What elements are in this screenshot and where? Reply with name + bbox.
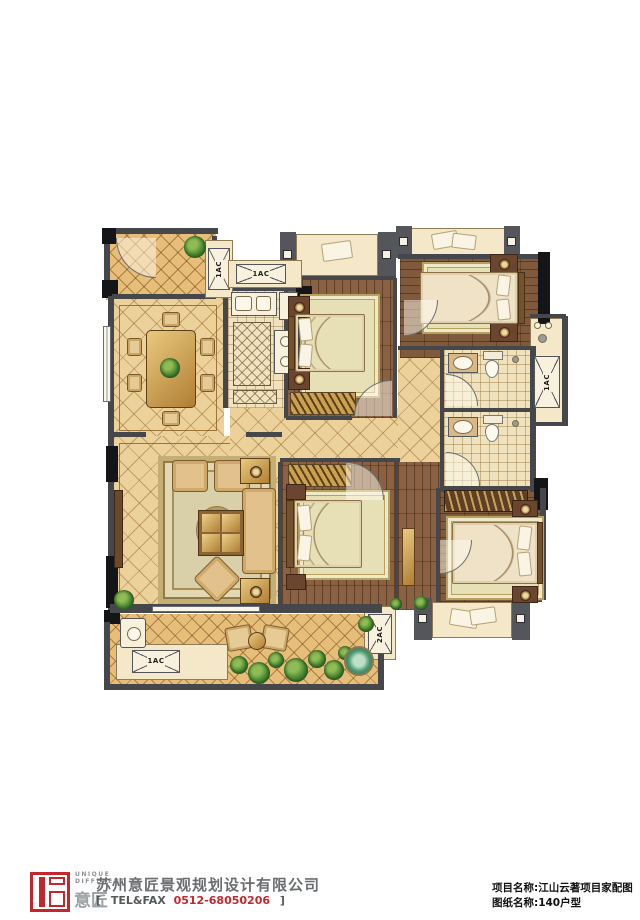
tel-label: TEL&FAX <box>111 894 166 907</box>
wall <box>104 244 110 284</box>
dining-centerpiece <box>160 358 180 378</box>
utility-fixture <box>545 322 552 329</box>
wall <box>280 458 400 462</box>
toilet-tank <box>483 351 503 360</box>
lamp <box>520 504 531 515</box>
tel-bracket-open: [ <box>96 894 101 907</box>
wall <box>278 462 282 610</box>
toilet-bowl <box>485 424 499 442</box>
bathroom-sink <box>453 356 473 370</box>
potted-plant <box>184 236 206 258</box>
terrace-table <box>248 632 266 650</box>
wall <box>104 684 382 690</box>
coffee-table-pane <box>222 534 240 552</box>
logo-bar <box>39 877 45 907</box>
terrace-plant <box>230 656 248 674</box>
utility-drain <box>538 334 547 343</box>
washer-door <box>127 627 141 641</box>
dining-chair <box>162 411 180 426</box>
window <box>103 326 111 402</box>
pier-inset <box>507 237 516 246</box>
bed-headboard <box>286 500 294 568</box>
terrace-plant <box>248 662 270 684</box>
dining-chair <box>127 374 142 392</box>
ac-label: 2AC <box>376 625 385 644</box>
coffee-table-pane <box>202 534 220 552</box>
ac-label: 1AC <box>252 270 271 279</box>
wardrobe <box>290 392 356 415</box>
ac-label: 1AC <box>147 657 166 666</box>
utility-fixture <box>534 322 541 329</box>
nightstand <box>490 322 518 342</box>
lamp <box>499 327 510 338</box>
wall <box>562 316 568 426</box>
floorplan-page: 1AC 1AC 1AC 1AC 2AC <box>0 0 640 920</box>
kitchen-sink-basin <box>256 296 271 311</box>
sheet-name-line: 图纸名称:140户型 <box>492 896 633 911</box>
bed-headboard <box>518 272 525 324</box>
terrace-plant <box>308 650 326 668</box>
ac-unit-utility: 1AC <box>534 356 560 408</box>
toilet <box>483 415 503 445</box>
wall-pier <box>512 598 530 640</box>
pier-inset <box>283 250 292 259</box>
bay-pillow <box>451 233 477 251</box>
wall <box>112 294 216 299</box>
project-name-line: 项目名称:江山云著项目家配图 <box>492 881 633 896</box>
wall <box>223 296 228 408</box>
dining-chair <box>200 374 215 392</box>
logo-block <box>49 891 65 907</box>
tel-number: 0512-68050206 <box>174 894 270 907</box>
nightstand <box>490 254 518 274</box>
wall <box>398 254 544 259</box>
ac-unit-terrace: 1AC <box>132 650 180 673</box>
nightstand <box>286 484 306 500</box>
bed-pillow <box>297 504 313 531</box>
wall-stub <box>112 432 146 437</box>
dining-chair <box>200 338 215 356</box>
water-feature <box>344 646 374 676</box>
terrace-plant <box>284 658 308 682</box>
bed-pillow <box>298 317 313 341</box>
wall <box>398 346 532 350</box>
wall-pier <box>378 232 396 278</box>
armchair <box>172 460 208 492</box>
company-logo <box>30 872 70 912</box>
titleblock: 项目名称:江山云著项目家配图 图纸名称:140户型 <box>492 881 633 911</box>
dining-chair <box>162 312 180 327</box>
bed-pillow <box>297 534 313 561</box>
bed-pillow <box>298 343 313 367</box>
sofa <box>242 488 276 574</box>
nightstand <box>512 586 538 603</box>
wall <box>104 228 218 234</box>
lamp <box>499 259 510 270</box>
ac-label: 1AC <box>215 260 224 279</box>
wall-pillar <box>106 446 118 482</box>
potted-plant <box>114 590 134 610</box>
pier-inset <box>516 614 525 623</box>
toilet <box>483 351 503 381</box>
wall <box>395 462 398 610</box>
pier-inset <box>418 614 427 623</box>
terrace-plant <box>268 652 284 668</box>
lamp <box>294 302 305 313</box>
wall <box>530 314 566 318</box>
bed-headboard <box>537 522 543 584</box>
dining-chair <box>127 338 142 356</box>
wall <box>104 622 110 688</box>
coffee-table <box>198 510 244 556</box>
console-table <box>402 528 415 586</box>
tel-bracket-close: ] <box>280 894 285 907</box>
kitchen-cabinet <box>233 390 277 404</box>
shower-head <box>512 420 519 427</box>
pier-inset <box>399 237 408 246</box>
ac-unit-kitchen: 1AC <box>236 264 286 284</box>
wall <box>393 278 397 418</box>
terrace-plant <box>324 660 344 680</box>
wall <box>444 408 530 412</box>
terrace-plant <box>358 616 374 632</box>
company-contact: [ TEL&FAX 0512-68050206 ] <box>96 894 285 907</box>
tv-cabinet <box>114 490 123 568</box>
hallway-floor-2 <box>398 350 444 462</box>
kitchen-sink-basin <box>235 296 252 311</box>
nightstand <box>512 500 538 517</box>
washing-machine <box>120 618 146 648</box>
nightstand <box>286 574 306 590</box>
lamp <box>250 586 262 598</box>
lamp <box>294 374 305 385</box>
potted-plant <box>390 598 402 610</box>
bathroom-sink <box>453 420 473 434</box>
coffee-table-pane <box>222 514 240 532</box>
lamp <box>520 590 531 601</box>
coffee-table-pane <box>202 514 220 532</box>
bed-pillow <box>496 298 511 320</box>
wall <box>440 348 444 492</box>
ac-label: 1AC <box>543 373 552 392</box>
sliding-door-window <box>152 606 260 612</box>
toilet-tank <box>483 415 503 424</box>
side-table <box>240 458 270 484</box>
kitchen-island <box>233 322 271 386</box>
side-table <box>240 578 270 604</box>
ac-unit-entry: 1AC <box>208 248 230 290</box>
toilet-bowl <box>485 360 499 378</box>
logo-block <box>49 877 65 885</box>
lamp <box>250 466 262 478</box>
bed-headboard <box>288 316 295 370</box>
company-name: 苏州意匠景观规划设计有限公司 <box>96 874 320 895</box>
wall-pillar <box>102 228 116 244</box>
shower-head <box>512 356 519 363</box>
bed-pillow <box>517 551 532 576</box>
wall-stub <box>246 432 282 437</box>
wall <box>286 416 352 420</box>
pier-inset <box>382 250 391 259</box>
potted-plant <box>414 596 428 610</box>
bed-pillow <box>496 274 511 296</box>
